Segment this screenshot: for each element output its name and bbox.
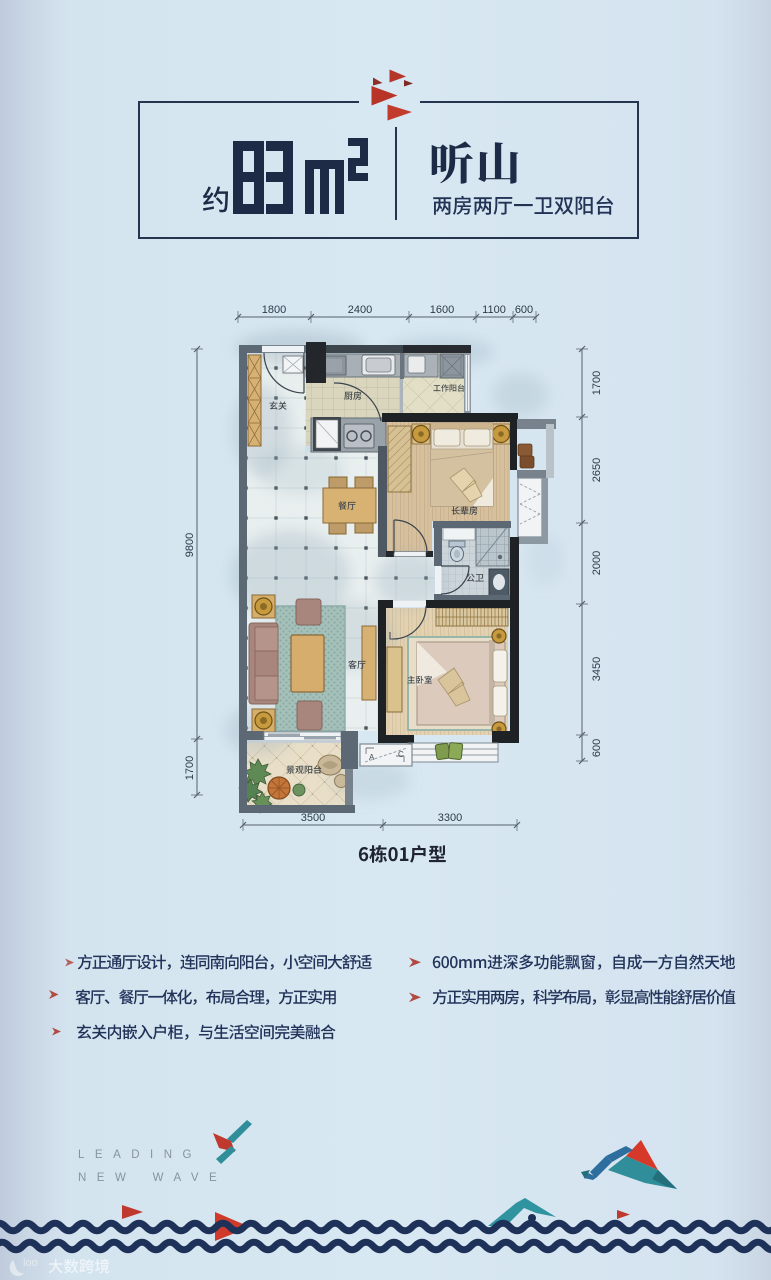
svg-text:LEADING: LEADING [78,1149,202,1161]
svg-text:NEW WAVE: NEW WAVE [78,1172,227,1184]
svg-text:2400: 2400 [348,304,372,316]
svg-text:1100: 1100 [482,304,506,316]
svg-text:3500: 3500 [301,812,325,824]
svg-text:1800: 1800 [262,304,286,316]
svg-text:1700: 1700 [591,371,603,395]
svg-text:600: 600 [515,304,533,316]
svg-text:loo: loo [23,1257,38,1269]
svg-text:C: C [398,750,404,759]
svg-text:2650: 2650 [591,458,603,482]
svg-text:A: A [369,753,375,762]
svg-text:3450: 3450 [591,657,603,681]
svg-text:3300: 3300 [438,812,462,824]
svg-text:1700: 1700 [184,756,196,780]
svg-text:1600: 1600 [430,304,454,316]
svg-text:600: 600 [591,739,603,757]
svg-text:9800: 9800 [184,533,196,557]
svg-text:2000: 2000 [591,551,603,575]
